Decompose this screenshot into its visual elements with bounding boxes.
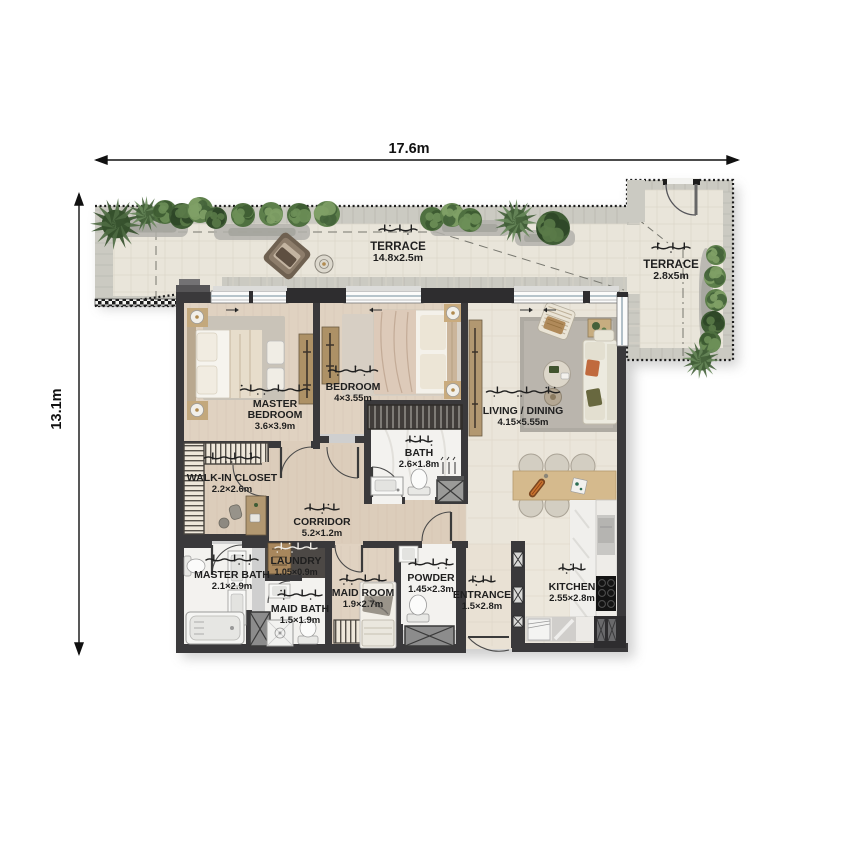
svg-text:POWDER: POWDER [407, 572, 455, 584]
svg-text:LAUNDRY: LAUNDRY [271, 555, 322, 567]
svg-text:13.1m: 13.1m [49, 388, 65, 429]
svg-text:MAID ROOM: MAID ROOM [332, 587, 395, 599]
svg-text:LIVING / DINING: LIVING / DINING [483, 405, 564, 417]
svg-text:1.5×2.8m: 1.5×2.8m [462, 601, 502, 612]
svg-text:14.8x2.5m: 14.8x2.5m [373, 252, 423, 264]
svg-text:17.6m: 17.6m [388, 141, 429, 157]
svg-text:BEDROOM: BEDROOM [326, 381, 381, 393]
svg-text:5.2×1.2m: 5.2×1.2m [302, 528, 342, 539]
svg-text:WALK-IN CLOSET: WALK-IN CLOSET [187, 472, 278, 484]
svg-text:4.15×5.55m: 4.15×5.55m [498, 417, 549, 428]
svg-text:ENTRANCE: ENTRANCE [453, 589, 511, 601]
svg-text:1.05×0.9m: 1.05×0.9m [274, 567, 317, 577]
svg-text:2.1×2.9m: 2.1×2.9m [212, 581, 252, 592]
svg-text:MAID BATH: MAID BATH [271, 603, 329, 615]
svg-text:4×3.55m: 4×3.55m [334, 393, 372, 404]
svg-text:1.45×2.3m: 1.45×2.3m [408, 584, 454, 595]
svg-text:2.8x5m: 2.8x5m [653, 270, 689, 282]
svg-text:3.6×3.9m: 3.6×3.9m [255, 421, 295, 432]
svg-text:BEDROOM: BEDROOM [248, 409, 303, 421]
svg-text:2.55×2.8m: 2.55×2.8m [549, 593, 595, 604]
svg-text:MASTER BATH: MASTER BATH [194, 569, 270, 581]
svg-text:2.2×2.6m: 2.2×2.6m [212, 484, 252, 495]
svg-text:2.6×1.8m: 2.6×1.8m [399, 459, 439, 470]
svg-text:BATH: BATH [405, 447, 433, 459]
svg-text:1.9×2.7m: 1.9×2.7m [343, 599, 383, 610]
svg-text:KITCHEN: KITCHEN [549, 581, 596, 593]
svg-text:1.5×1.9m: 1.5×1.9m [280, 615, 320, 626]
svg-text:CORRIDOR: CORRIDOR [293, 516, 351, 528]
